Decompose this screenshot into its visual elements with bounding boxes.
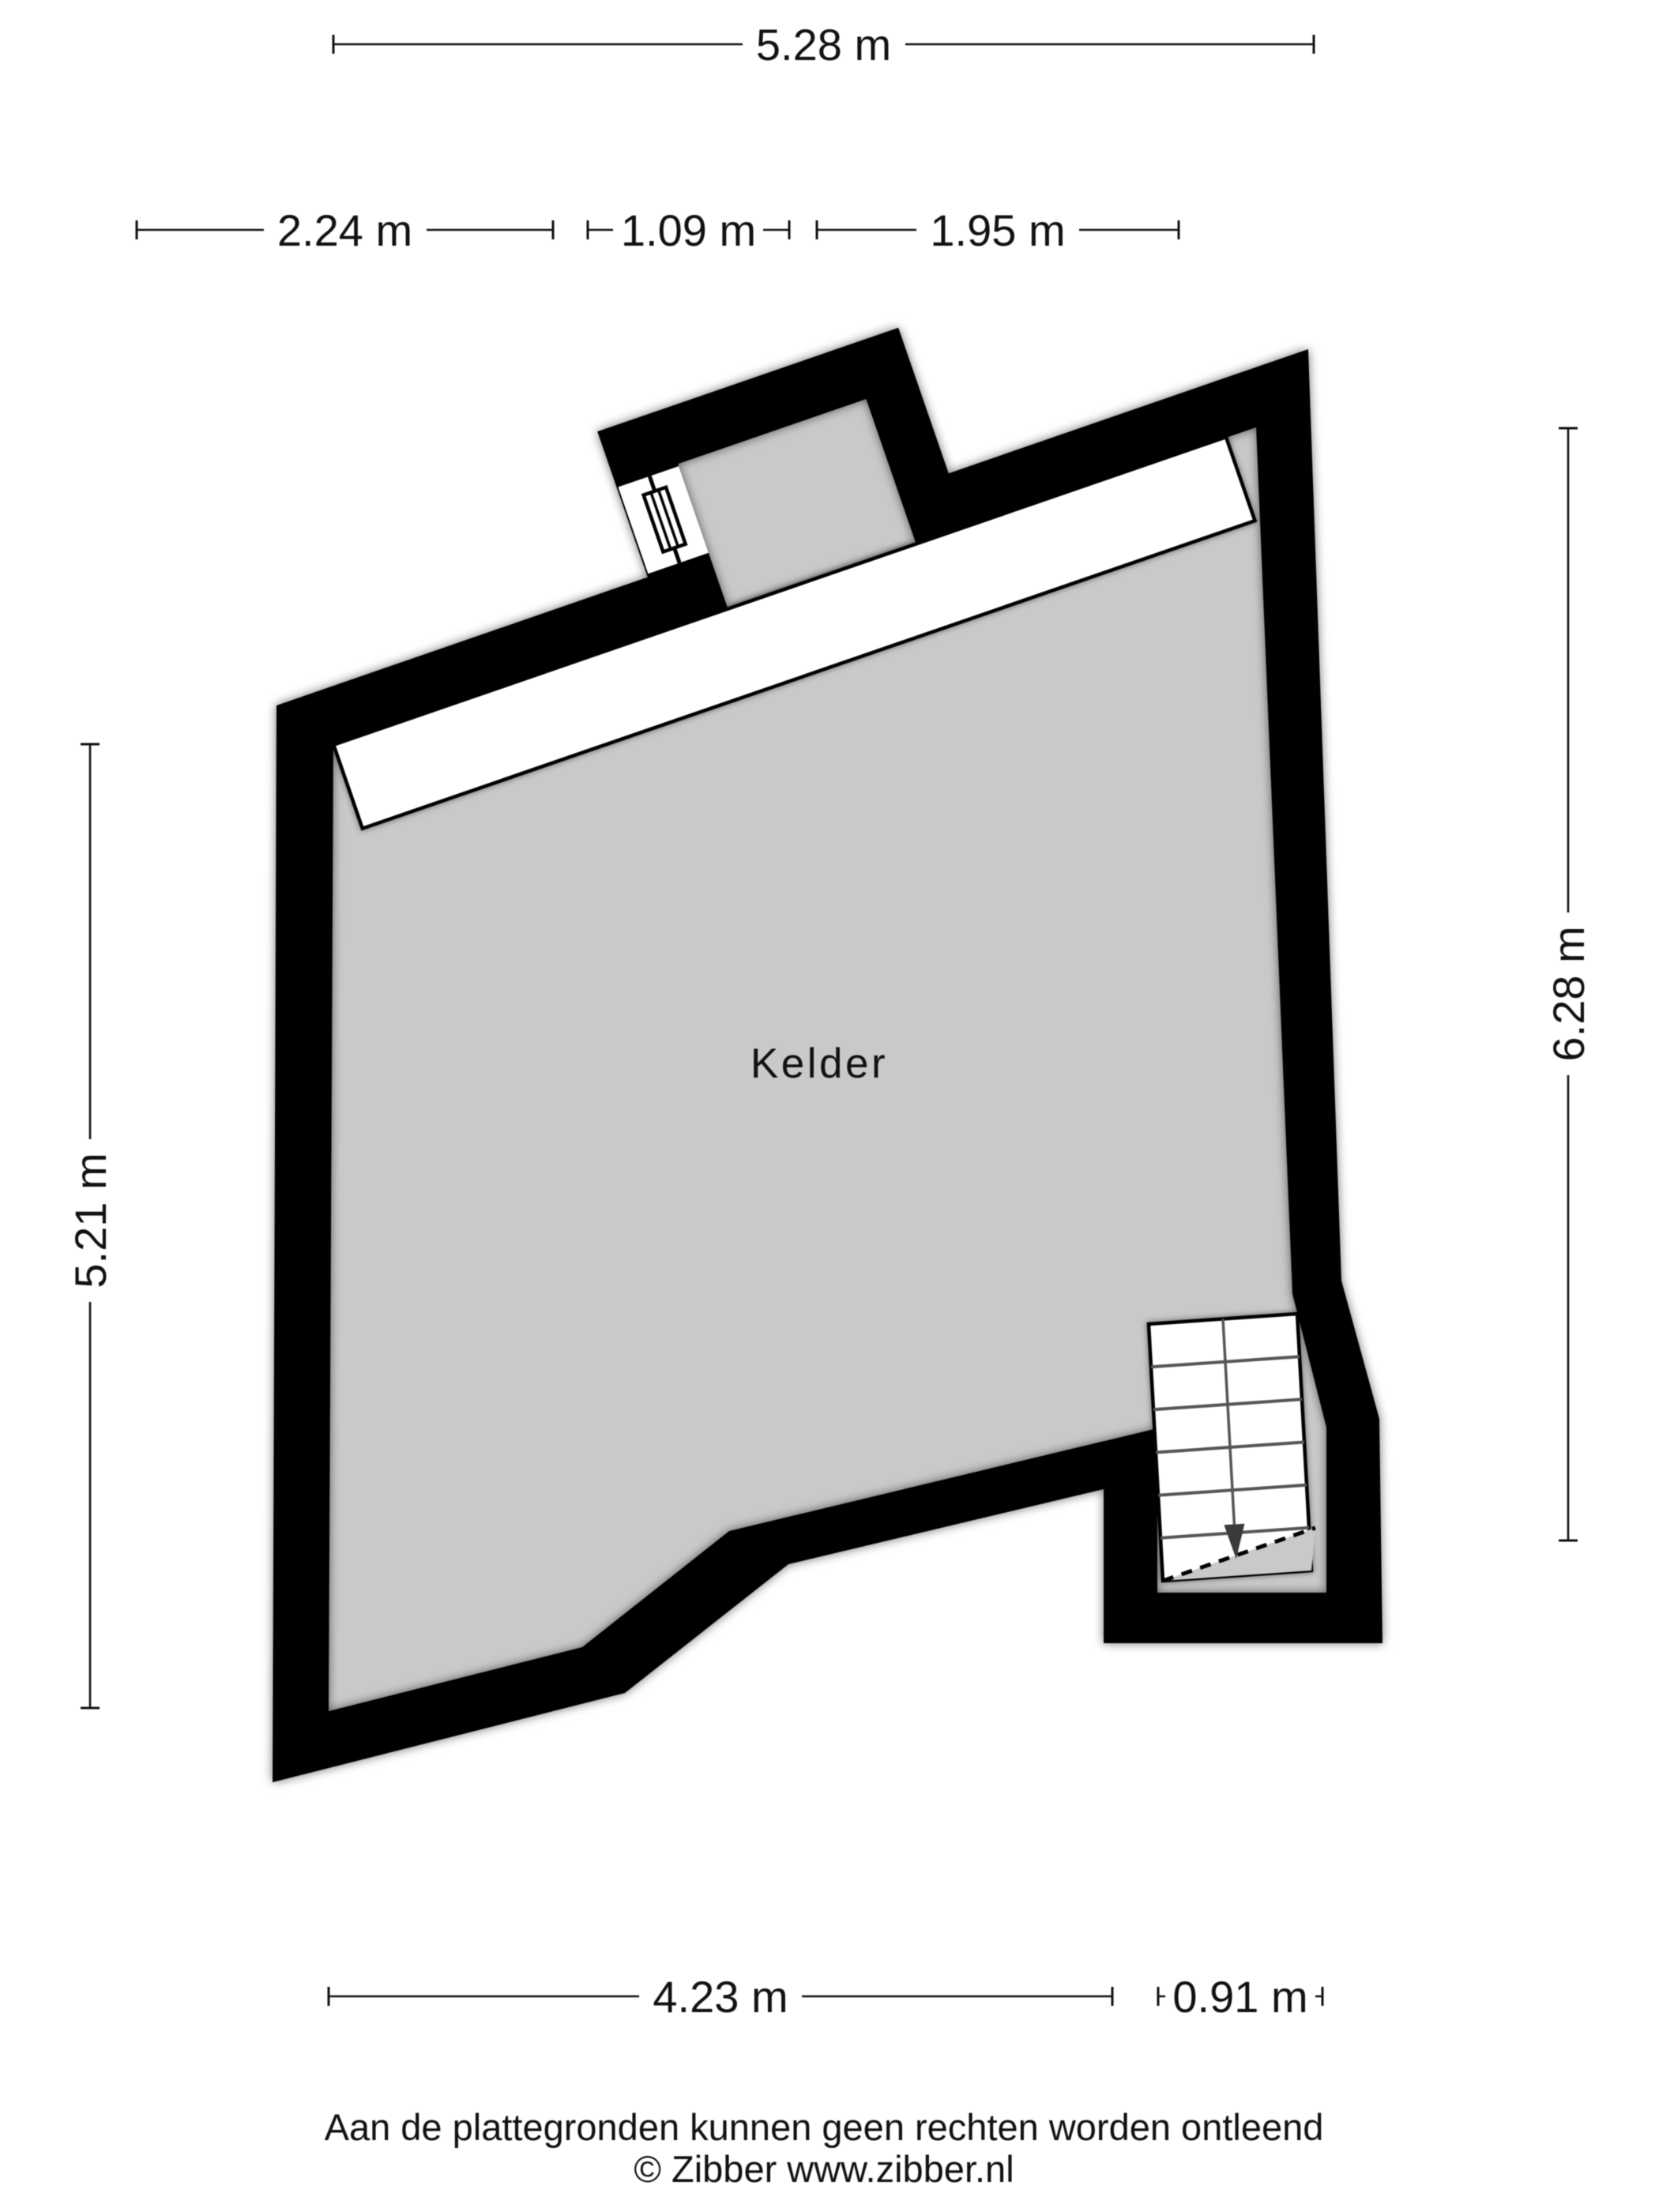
svg-text:© Zibber www.zibber.nl: © Zibber www.zibber.nl: [634, 2148, 1014, 2190]
svg-text:6.28 m: 6.28 m: [1544, 926, 1593, 1061]
svg-text:1.95 m: 1.95 m: [930, 205, 1065, 255]
svg-text:Aan de plattegronden kunnen ge: Aan de plattegronden kunnen geen rechten…: [325, 2106, 1324, 2148]
svg-text:2.24 m: 2.24 m: [277, 205, 412, 255]
svg-text:5.21 m: 5.21 m: [66, 1153, 115, 1288]
svg-text:4.23 m: 4.23 m: [653, 1972, 788, 2022]
svg-text:1.09 m: 1.09 m: [621, 205, 756, 255]
svg-text:Kelder: Kelder: [750, 1040, 888, 1087]
svg-text:0.91 m: 0.91 m: [1172, 1972, 1307, 2022]
svg-text:5.28 m: 5.28 m: [756, 20, 891, 70]
